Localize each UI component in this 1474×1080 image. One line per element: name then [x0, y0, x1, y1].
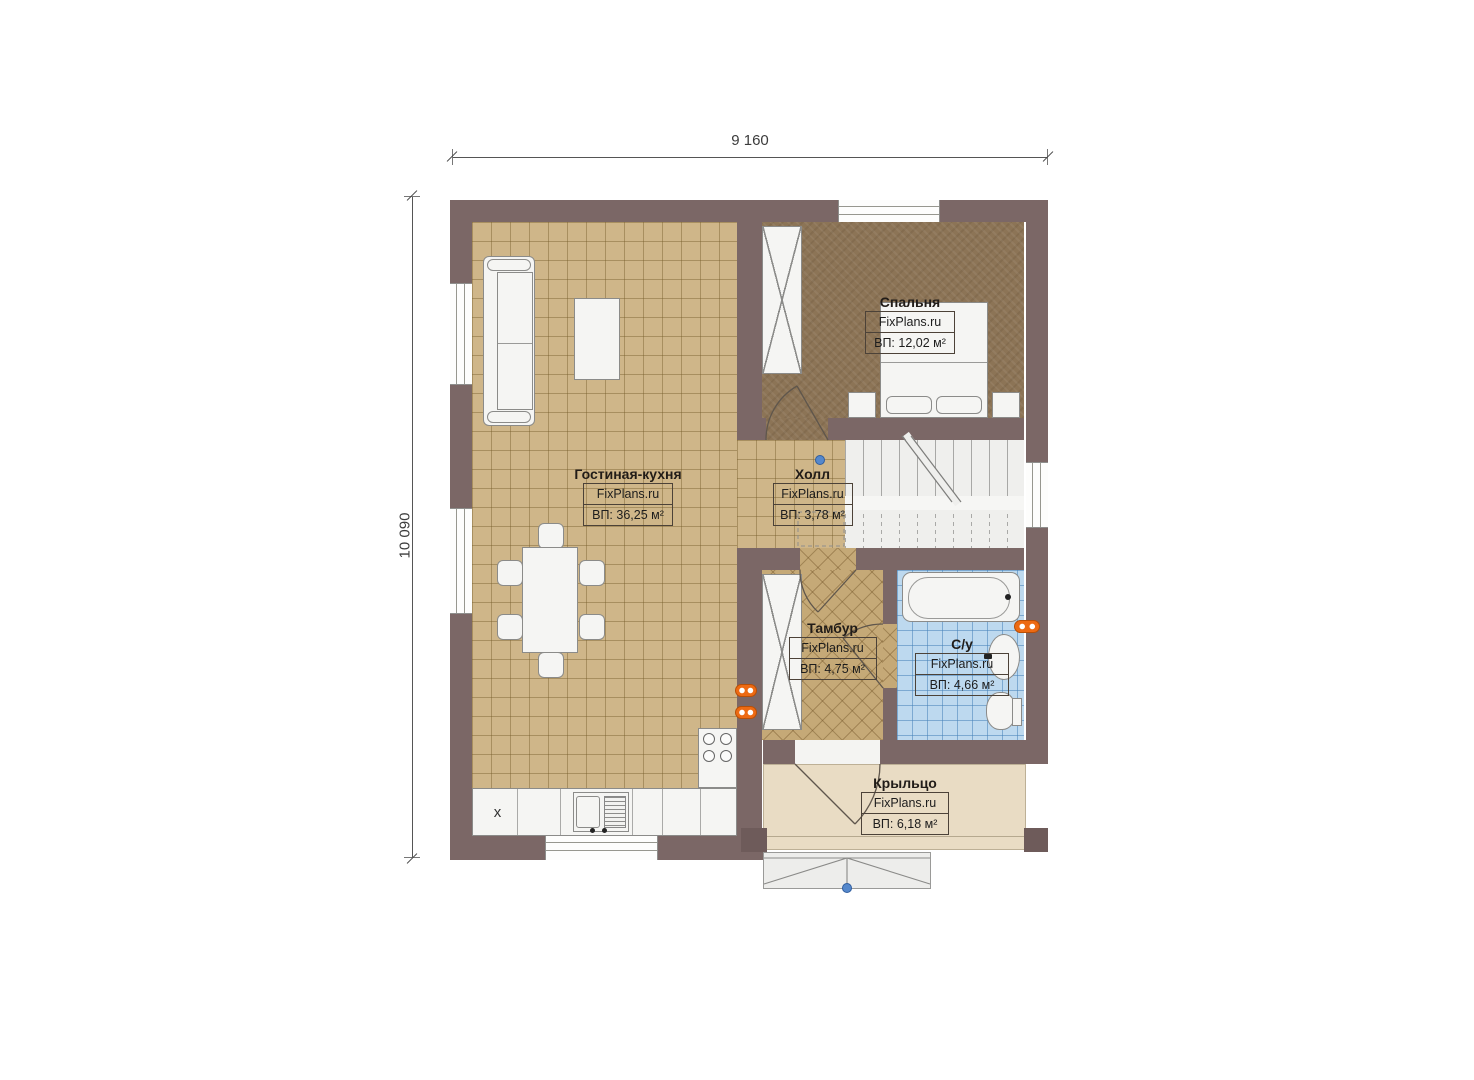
room-label-boxes: FixPlans.ru ВП: 3,78 м² — [773, 483, 853, 526]
room-area: ВП: 3,78 м² — [773, 504, 853, 526]
bed-pillow-right — [936, 396, 982, 414]
porch-steps — [763, 852, 931, 889]
room-brand: FixPlans.ru — [861, 792, 949, 814]
sink-basin — [576, 796, 600, 828]
room-label-boxes: FixPlans.ru ВП: 12,02 м² — [865, 311, 955, 354]
dining-table — [522, 547, 578, 653]
staircase-lower-flight — [845, 510, 1024, 548]
chair-right-2 — [579, 614, 605, 640]
wall-hall-tambour-right — [856, 548, 1024, 570]
bedroom-wardrobe — [762, 226, 802, 374]
room-label-boxes: FixPlans.ru ВП: 4,66 м² — [915, 653, 1009, 696]
wall-bottom-right-segment-2 — [880, 740, 1048, 764]
room-label-bathroom: С/у FixPlans.ru ВП: 4,66 м² — [912, 636, 1012, 696]
wall-left-segment-2 — [450, 385, 472, 508]
dimension-top: 9 160 — [452, 130, 1048, 170]
window-left-upper — [450, 283, 472, 385]
wall-bottom-right-segment-1 — [763, 740, 795, 764]
room-name: С/у — [912, 636, 1012, 652]
room-label-boxes: FixPlans.ru ВП: 36,25 м² — [583, 483, 673, 526]
chair-top — [538, 523, 564, 549]
staircase-upper-flight — [845, 440, 1024, 496]
wall-interior-vertical-top — [737, 222, 762, 440]
sofa-armrest-bottom — [487, 411, 531, 423]
staircase-landing — [845, 496, 1024, 510]
sink-faucet-dot — [602, 828, 607, 833]
bathtub-inner — [908, 577, 1010, 619]
bed-pillow-left — [886, 396, 932, 414]
room-area: ВП: 4,66 м² — [915, 674, 1009, 696]
dimension-width-label: 9 160 — [452, 132, 1048, 149]
stove-burner — [703, 733, 715, 745]
wall-right-segment-2 — [1026, 528, 1048, 764]
stove-burner — [720, 750, 732, 762]
room-label-bedroom: Спальня FixPlans.ru ВП: 12,02 м² — [855, 294, 965, 354]
counter-divider — [517, 789, 518, 835]
room-brand: FixPlans.ru — [789, 637, 877, 659]
dimension-height-label: 10 090 — [396, 513, 413, 559]
room-area: ВП: 36,25 м² — [583, 504, 673, 526]
chair-bottom — [538, 652, 564, 678]
wall-interior-vertical-bottom — [737, 548, 762, 860]
chair-right-1 — [579, 560, 605, 586]
room-name: Крыльцо — [855, 775, 955, 791]
window-top-bedroom — [838, 200, 940, 222]
wall-bottom-left-segment-1 — [450, 836, 545, 860]
room-name: Тамбур — [785, 620, 880, 636]
wall-tambour-bath-bottom — [883, 688, 897, 740]
dimension-line — [452, 157, 1048, 158]
entrance-door-threshold — [795, 740, 880, 764]
sofa-cushions — [497, 272, 533, 410]
sink-faucet-dot — [590, 828, 595, 833]
room-name: Холл — [770, 466, 855, 482]
stove-burner — [720, 733, 732, 745]
wall-top-left-segment — [450, 200, 838, 222]
tambour-door-threshold — [800, 548, 856, 570]
porch-post-right — [1024, 828, 1048, 852]
stove-burner — [703, 750, 715, 762]
bathroom-door-threshold — [883, 624, 897, 688]
sofa-armrest-top — [487, 259, 531, 271]
porch-edge-line — [763, 836, 1026, 837]
chair-left-2 — [497, 614, 523, 640]
room-label-boxes: FixPlans.ru ВП: 4,75 м² — [789, 637, 877, 680]
dimension-left: 10 090 — [390, 196, 434, 858]
room-label-porch: Крыльцо FixPlans.ru ВП: 6,18 м² — [855, 775, 955, 835]
sink-drainer — [604, 796, 626, 828]
counter-divider — [662, 789, 663, 835]
wall-bedroom-hall — [828, 418, 1024, 440]
room-brand: FixPlans.ru — [915, 653, 1009, 675]
nightstand-left — [848, 392, 876, 418]
room-brand: FixPlans.ru — [865, 311, 955, 333]
room-area: ВП: 12,02 м² — [865, 332, 955, 354]
porch-post-left — [741, 828, 767, 852]
coffee-table — [574, 298, 620, 380]
window-left-lower — [450, 508, 472, 614]
bedroom-door-threshold — [766, 418, 828, 440]
counter-divider — [632, 789, 633, 835]
wall-tambour-bath-top — [883, 570, 897, 624]
radiator-living — [735, 684, 757, 697]
counter-divider — [700, 789, 701, 835]
room-brand: FixPlans.ru — [583, 483, 673, 505]
room-label-living: Гостиная-кухня FixPlans.ru ВП: 36,25 м² — [558, 466, 698, 526]
toilet-tank — [1012, 698, 1022, 726]
room-area: ВП: 6,18 м² — [861, 813, 949, 835]
room-label-tambour: Тамбур FixPlans.ru ВП: 4,75 м² — [785, 620, 880, 680]
room-area: ВП: 4,75 м² — [789, 658, 877, 680]
nightstand-right — [992, 392, 1020, 418]
floor-plan-canvas: x 9 160 10 090 Гос — [0, 0, 1474, 1080]
wall-left-segment-1 — [450, 200, 472, 283]
chair-left-1 — [497, 560, 523, 586]
window-bottom-kitchen — [545, 836, 658, 860]
room-brand: FixPlans.ru — [773, 483, 853, 505]
window-right-stairs — [1026, 462, 1048, 528]
room-label-hall: Холл FixPlans.ru ВП: 3,78 м² — [770, 466, 855, 526]
radiator-living — [735, 706, 757, 719]
bathtub-faucet — [1005, 594, 1011, 600]
radiator-bathroom — [1014, 620, 1040, 633]
fridge-marker: x — [478, 790, 517, 834]
counter-divider — [560, 789, 561, 835]
room-name: Спальня — [855, 294, 965, 310]
wall-left-segment-3 — [450, 614, 472, 860]
room-label-boxes: FixPlans.ru ВП: 6,18 м² — [861, 792, 949, 835]
wall-right-segment-1 — [1026, 200, 1048, 462]
room-name: Гостиная-кухня — [558, 466, 698, 482]
wall-hall-tambour-left — [762, 548, 800, 570]
